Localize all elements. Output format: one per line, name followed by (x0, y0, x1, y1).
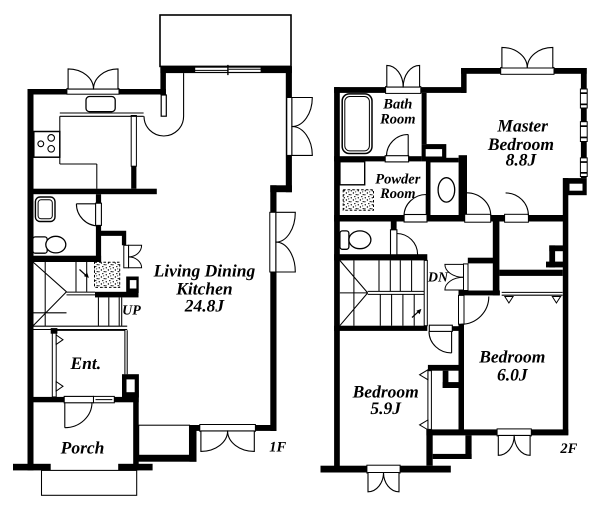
svg-text:Porch: Porch (60, 438, 105, 458)
svg-text:5.9J: 5.9J (370, 398, 402, 418)
svg-text:8.8J: 8.8J (506, 150, 538, 170)
svg-text:24.8J: 24.8J (184, 296, 226, 316)
svg-text:Ent.: Ent. (69, 353, 101, 373)
svg-text:Room: Room (379, 186, 415, 202)
svg-text:Room: Room (379, 111, 415, 127)
svg-text:DN: DN (427, 270, 449, 285)
svg-text:Living Dining: Living Dining (153, 260, 256, 280)
svg-text:6.0J: 6.0J (497, 365, 529, 385)
svg-text:2F: 2F (559, 441, 577, 457)
svg-text:Bedroom: Bedroom (478, 346, 545, 366)
svg-text:UP: UP (122, 304, 141, 319)
svg-text:1F: 1F (269, 439, 286, 455)
svg-text:Bath: Bath (382, 96, 412, 112)
svg-text:Master: Master (496, 115, 548, 135)
